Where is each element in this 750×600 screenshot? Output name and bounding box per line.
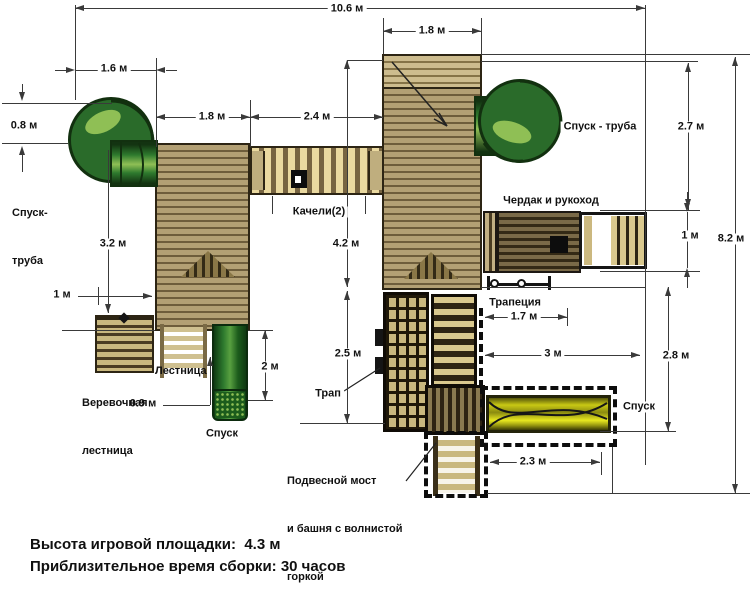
label-ladder: Лестница	[155, 363, 207, 379]
dim-text-left-tower-height: 3.2 м	[97, 239, 130, 250]
reference-line	[481, 54, 750, 55]
dim-line-total-height	[735, 57, 736, 493]
arrowhead	[75, 5, 84, 11]
footer-playground-height: Высота игровой площадки: 4.3 м	[30, 536, 280, 553]
label-tube-right: Спуск - труба	[561, 122, 640, 133]
dim-stub	[55, 70, 66, 71]
dim-text-loft-span: 3 м	[541, 349, 564, 360]
label-tick	[272, 196, 273, 214]
reference-line	[300, 423, 385, 424]
extension-line	[383, 18, 384, 54]
arrowhead	[156, 67, 165, 73]
dim-line-main-tower-height	[347, 60, 348, 287]
reference-line	[481, 287, 645, 288]
dim-text-main-tower-width: 1.8 м	[416, 26, 449, 37]
label-tube-left-line1: Спуск-	[12, 205, 48, 221]
dim-text-spiral-width: 1.6 м	[98, 64, 131, 75]
dim-text-main-tower-height: 4.2 м	[330, 239, 363, 250]
dim-tick	[567, 308, 568, 326]
arrowhead	[344, 291, 350, 300]
arrowhead	[732, 57, 738, 66]
label-trapeze: Трапеция	[486, 298, 544, 309]
arrowhead	[732, 484, 738, 493]
label-rope-ladder-line1: Веревочная	[82, 395, 148, 411]
reference-line	[487, 493, 750, 494]
label-rope-ladder: Веревочная лестница	[82, 363, 148, 491]
reference-line	[62, 330, 155, 331]
arrowhead	[485, 314, 494, 320]
arrowhead	[105, 304, 111, 313]
dim-text-swing-span: 2.4 м	[301, 112, 334, 123]
arrowhead	[262, 391, 268, 400]
extension-line	[75, 5, 76, 100]
dim-line-left-tower-height	[108, 150, 109, 313]
label-rope-ladder-line2: лестница	[82, 443, 148, 459]
extension-line	[250, 100, 251, 147]
dim-line-right-drop	[688, 63, 689, 210]
extension-line	[645, 5, 646, 465]
arrowhead	[344, 278, 350, 287]
dim-stub	[348, 60, 383, 61]
dim-stub	[687, 192, 688, 203]
arrowhead	[344, 414, 350, 423]
label-bridge: Подвесной мост и башня с волнистой горко…	[287, 441, 403, 600]
arrowhead	[262, 330, 268, 339]
arrowhead	[19, 146, 25, 155]
arrowhead	[241, 114, 250, 120]
arrowhead	[143, 293, 152, 299]
label-ramp: Трап	[312, 389, 344, 400]
extension-line	[612, 447, 613, 493]
dim-text-loft-height: 1 м	[678, 231, 701, 242]
arrowhead	[684, 203, 690, 212]
label-swings: Качели(2)	[290, 207, 348, 218]
arrowhead	[250, 114, 259, 120]
arrowhead	[490, 459, 499, 465]
dim-text-trapeze-width: 1.7 м	[508, 312, 541, 323]
dim-tick	[601, 452, 602, 475]
reference-line	[600, 431, 676, 432]
reference-line	[2, 103, 112, 104]
label-loft: Чердак и рукоход	[500, 196, 602, 207]
dim-stub	[166, 70, 177, 71]
dim-text-left-tower-width: 1.8 м	[196, 112, 229, 123]
reference-line	[481, 61, 698, 62]
arrowhead	[485, 352, 494, 358]
arrowhead	[207, 357, 213, 366]
arrowhead	[374, 114, 383, 120]
extension-line	[481, 18, 482, 54]
reference-line	[2, 143, 68, 144]
arrowhead	[665, 422, 671, 431]
dim-tick	[98, 287, 99, 305]
dim-text-total-width: 10.6 м	[328, 4, 367, 15]
label-tube-left: Спуск- труба	[12, 173, 48, 301]
dim-tick	[248, 330, 273, 331]
label-bridge-line2: и башня с волнистой	[287, 521, 403, 537]
arrowhead	[685, 63, 691, 72]
label-slide-left: Спуск	[203, 429, 241, 440]
arrowhead	[472, 28, 481, 34]
label-tick	[365, 196, 366, 214]
dim-text-left-gap: 1 м	[50, 290, 73, 301]
arrowhead	[558, 314, 567, 320]
arrowhead	[156, 114, 165, 120]
label-slide-wavy: Спуск	[620, 402, 658, 413]
dim-text-right-drop: 2.7 м	[675, 122, 708, 133]
dim-leader	[163, 405, 210, 406]
dim-text-ramp-height: 2.5 м	[332, 349, 365, 360]
arrowhead	[591, 459, 600, 465]
dim-line-left-gap	[78, 296, 152, 297]
arrowhead	[383, 28, 392, 34]
arrowhead	[19, 92, 25, 101]
label-tube-left-line2: труба	[12, 253, 48, 269]
dim-text-lower-height: 2.8 м	[660, 351, 693, 362]
arrowhead	[684, 268, 690, 277]
arrowhead	[66, 67, 75, 73]
arrowhead	[631, 352, 640, 358]
playground-plan-diagram: 10.6 м 1.8 м 1.6 м 0.8 м 1.8 м 2.4 м Спу…	[0, 0, 750, 600]
label-bridge-line1: Подвесной мост	[287, 473, 403, 489]
dim-text-wavy-length: 2.3 м	[517, 457, 550, 468]
arrowhead	[344, 60, 350, 69]
arrowhead	[665, 287, 671, 296]
dim-tick	[248, 400, 273, 401]
footer-assembly-time: Приблизительное время сборки: 30 часов	[30, 558, 345, 575]
arrowhead	[636, 5, 645, 11]
dim-text-slide-height: 2 м	[258, 362, 281, 373]
dim-line-left-tower-width	[156, 117, 383, 118]
dim-stub	[687, 277, 688, 288]
dim-text-tube-exit: 0.8 м	[8, 121, 41, 132]
dim-text-total-height: 8.2 м	[715, 234, 748, 245]
